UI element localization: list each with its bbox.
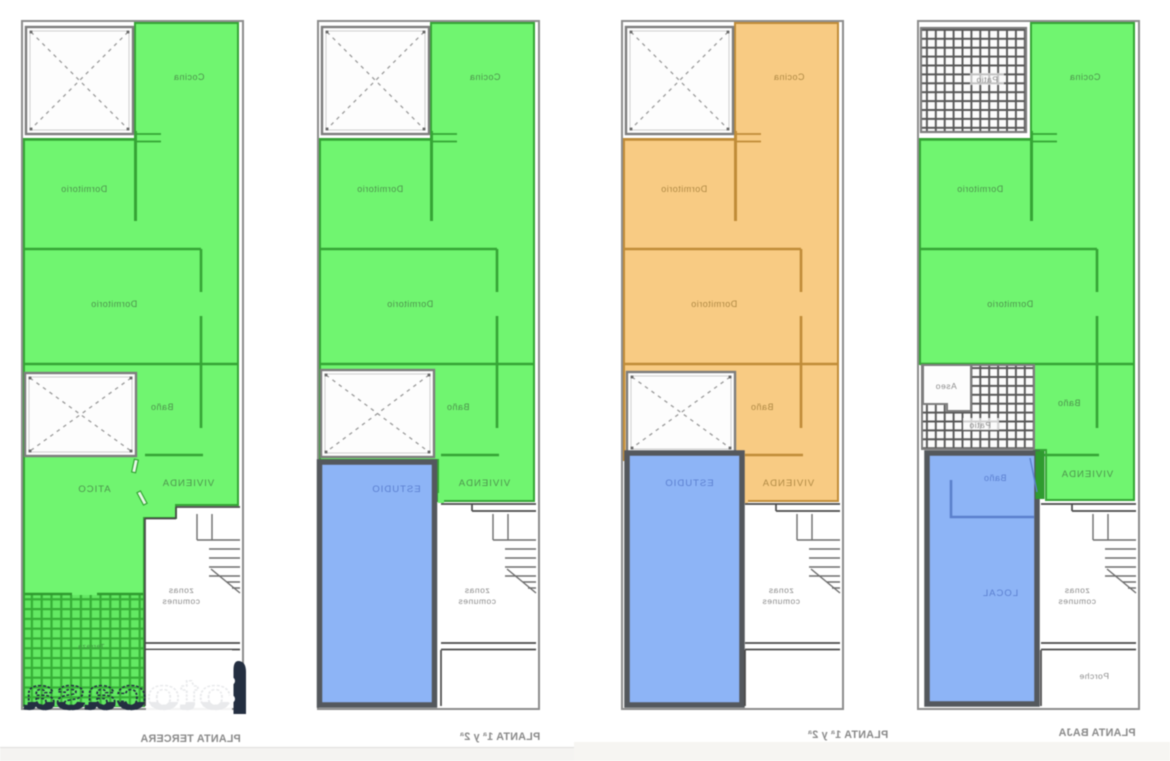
svg-text:ESTUDIO: ESTUDIO: [371, 484, 420, 495]
svg-text:ATICO: ATICO: [77, 484, 110, 495]
svg-text:zonas: zonas: [464, 585, 489, 595]
svg-text:Cocina: Cocina: [173, 72, 204, 82]
svg-text:Dormitorio: Dormitorio: [387, 299, 434, 309]
svg-text:Cocina: Cocina: [469, 72, 500, 82]
svg-text:Dormitorio: Dormitorio: [691, 299, 738, 309]
svg-text:Dormitorio: Dormitorio: [661, 184, 708, 194]
svg-text:VIVIENDA: VIVIENDA: [762, 478, 814, 489]
svg-text:zonas: zonas: [768, 585, 793, 595]
svg-text:Baño: Baño: [1057, 398, 1080, 408]
svg-text:Dormitorio: Dormitorio: [957, 184, 1004, 194]
svg-text:PLANTA 1ª y 2ª: PLANTA 1ª y 2ª: [808, 729, 888, 741]
svg-text:Patio: Patio: [976, 75, 998, 85]
svg-text:VIVIENDA: VIVIENDA: [458, 478, 510, 489]
svg-text:PLANTA TERCERA: PLANTA TERCERA: [140, 733, 241, 745]
svg-text:comunes: comunes: [162, 596, 200, 606]
svg-text:Patio: Patio: [969, 420, 991, 430]
svg-text:Dormitorio: Dormitorio: [357, 184, 404, 194]
svg-text:Porche: Porche: [1079, 671, 1109, 681]
svg-text:zonas: zonas: [1064, 585, 1089, 595]
svg-text:Dormitorio: Dormitorio: [61, 184, 108, 194]
svg-text:Baño: Baño: [750, 402, 773, 412]
svg-text:ESTUDIO: ESTUDIO: [664, 478, 713, 489]
svg-text:zonas: zonas: [168, 585, 193, 595]
svg-text:VIVIENDA: VIVIENDA: [1061, 469, 1113, 480]
svg-text:Aseo: Aseo: [935, 381, 956, 391]
svg-text:Cocina: Cocina: [773, 72, 804, 82]
svg-text:Terraza: Terraza: [78, 644, 105, 651]
svg-text:Cocina: Cocina: [1069, 72, 1100, 82]
svg-text:Baño: Baño: [150, 402, 173, 412]
svg-text:Baño: Baño: [983, 473, 1006, 483]
svg-text:Dormitorio: Dormitorio: [987, 299, 1034, 309]
svg-text:VIVIENDA: VIVIENDA: [162, 478, 214, 489]
svg-text:Baño: Baño: [446, 402, 469, 412]
svg-text:PLANTA BAJA: PLANTA BAJA: [1058, 727, 1135, 739]
svg-text:PLANTA 1ª y 2ª: PLANTA 1ª y 2ª: [460, 731, 540, 743]
svg-text:Dormitorio: Dormitorio: [91, 299, 138, 309]
svg-text:comunes: comunes: [1058, 596, 1096, 606]
svg-text:comunes: comunes: [458, 596, 496, 606]
svg-text:LOCAL: LOCAL: [982, 588, 1018, 599]
svg-text:comunes: comunes: [762, 596, 800, 606]
